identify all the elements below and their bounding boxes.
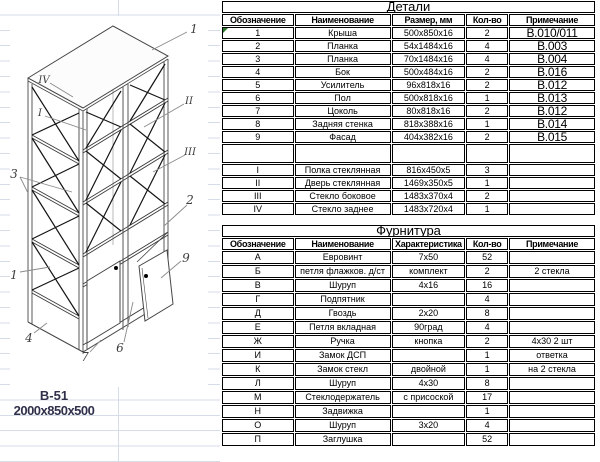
column-header-cell[interactable]: Размер, мм [392, 14, 466, 26]
table-row: ВШуруп4x1616 [222, 279, 595, 292]
table-cell[interactable] [509, 279, 595, 292]
table-cell[interactable]: 7x50 [392, 251, 466, 264]
table-cell[interactable]: 9 [222, 131, 294, 143]
table-row: МСтеклодержательс присоской17 [222, 391, 595, 404]
table-cell[interactable]: Шуруп [295, 377, 391, 390]
table-cell[interactable]: В.015 [509, 131, 595, 143]
table-cell[interactable]: Петля вкладная [295, 321, 391, 334]
center-post [123, 84, 128, 330]
table-cell[interactable]: 1 [466, 363, 508, 376]
table-cell[interactable]: ответка [509, 349, 595, 362]
column-header-cell[interactable]: Кол-во [466, 238, 508, 250]
table-title-row: Детали [222, 1, 595, 13]
table-cell[interactable]: В [222, 279, 294, 292]
table-row: 6Пол500x818x161В.013 [222, 92, 595, 104]
table-cell[interactable]: 8 [466, 377, 508, 390]
sheet-gridlines: 1 IV I 3 1 4 7 6 9 II III 2 В-51 2000x85… [0, 0, 220, 462]
table-cell[interactable]: 3x20 [392, 419, 466, 432]
table-cell[interactable]: 500x484x16 [392, 66, 466, 78]
table-cell[interactable]: Ручка [295, 335, 391, 348]
table-cell[interactable]: I [222, 164, 294, 176]
table-cell[interactable]: III [222, 190, 294, 202]
left-door-handle [114, 266, 118, 270]
table-cell[interactable]: Евровинт [295, 251, 391, 264]
table-row: 5Усилитель96x818x162В.012 [222, 79, 595, 91]
table-row: ЛШуруп4x308 [222, 377, 595, 390]
table-cell[interactable] [509, 377, 595, 390]
table-row: АЕвровинт7x5052 [222, 251, 595, 264]
table-title-row: Фурнитура [222, 225, 595, 237]
column-header-cell[interactable]: Наименование [295, 238, 391, 250]
table-cell[interactable]: 2 [466, 131, 508, 143]
table-cell[interactable]: 3 [466, 164, 508, 176]
table-cell[interactable]: Пол [295, 92, 391, 104]
table-cell[interactable] [392, 293, 466, 306]
table-cell[interactable]: 5 [222, 79, 294, 91]
table-cell[interactable]: А [222, 251, 294, 264]
table-cell[interactable] [509, 433, 595, 446]
table-row: ОШуруп3x204 [222, 419, 595, 432]
table-cell[interactable]: 4 [466, 321, 508, 334]
table-cell[interactable]: В.004 [509, 53, 595, 65]
table-cell[interactable]: Заглушка [295, 433, 391, 446]
table-cell[interactable] [509, 177, 595, 189]
table-cell[interactable] [295, 144, 391, 163]
table-cell[interactable]: М [222, 391, 294, 404]
table-cell[interactable]: 1483x370x4 [392, 190, 466, 202]
table-cell[interactable]: В.016 [509, 66, 595, 78]
table-cell[interactable]: 2 стекла [509, 265, 595, 278]
table-cell[interactable]: Стекло боковое [295, 190, 391, 202]
cabinet-drawing-svg: 1 IV I 3 1 4 7 6 9 II III 2 [10, 16, 208, 387]
table-cell[interactable]: Фасад [295, 131, 391, 143]
label-glass-ii: II [184, 96, 194, 107]
table-cell[interactable]: Стекло заднее [295, 203, 391, 215]
table-cell[interactable]: кнопка [392, 335, 466, 348]
table-cell[interactable]: Шуруп [295, 279, 391, 292]
table-cell[interactable] [392, 405, 466, 418]
table-row: ЖРучкакнопка24x30 2 шт [222, 335, 595, 348]
table-cell[interactable] [509, 293, 595, 306]
table-row: IVСтекло заднее1483x720x41 [222, 203, 595, 215]
model-number: В-51 [0, 388, 108, 403]
table-cell[interactable] [509, 307, 595, 320]
label-part-1-left: 1 [10, 268, 18, 282]
column-header-cell[interactable]: Кол-во [466, 14, 508, 26]
table-cell[interactable]: 52 [466, 251, 508, 264]
table-cell[interactable]: Ж [222, 335, 294, 348]
table-row: IПолка стеклянная816x450x53 [222, 164, 595, 176]
table-row: IIДверь стеклянная1469x350x51 [222, 177, 595, 189]
column-header-cell[interactable]: Примечание [509, 238, 595, 250]
table-cell[interactable]: П [222, 433, 294, 446]
table-row: НЗадвижка1 [222, 405, 595, 418]
table-cell[interactable]: на 2 стекла [509, 363, 595, 376]
column-header-cell[interactable]: Примечание [509, 14, 595, 26]
details-table-body: 1Крыша500x850x162В.010/0112Планка54x1484… [222, 27, 595, 215]
table-row: ОбозначениеНаименованиеРазмер, ммКол-воП… [222, 14, 595, 26]
table-cell[interactable]: 2 [466, 190, 508, 202]
table-cell[interactable]: 52 [466, 433, 508, 446]
table-cell[interactable]: Планка [295, 53, 391, 65]
column-header-cell[interactable]: Наименование [295, 14, 391, 26]
table-row: ИЗамок ДСП1ответка [222, 349, 595, 362]
table-cell[interactable]: 1483x720x4 [392, 203, 466, 215]
table-row: 7Цоколь80x818x162В.012 [222, 105, 595, 117]
hardware-table: Фурнитура ОбозначениеНаименованиеХаракте… [221, 224, 596, 447]
table-cell[interactable]: Г [222, 293, 294, 306]
table-cell[interactable]: В.010/011 [509, 27, 595, 39]
table-cell[interactable]: О [222, 419, 294, 432]
table-cell[interactable] [392, 433, 466, 446]
table-cell[interactable]: 4x30 2 шт [509, 335, 595, 348]
table-cell[interactable]: Замок стекл [295, 363, 391, 376]
table-cell[interactable] [509, 251, 595, 264]
label-part-9: 9 [182, 251, 190, 265]
table-cell[interactable]: В.013 [509, 92, 595, 104]
left-face-glass-diagonals [32, 87, 79, 316]
column-header-cell[interactable]: Обозначение [222, 238, 294, 250]
label-part-3: 3 [10, 167, 18, 181]
table-cell[interactable]: 1 [466, 118, 508, 130]
table-cell[interactable]: Дверь стеклянная [295, 177, 391, 189]
table-cell[interactable]: Л [222, 377, 294, 390]
table-cell[interactable]: Цоколь [295, 105, 391, 117]
label-glass-i: I [37, 108, 43, 119]
table-cell[interactable]: 4x30 [392, 377, 466, 390]
table-cell[interactable] [509, 391, 595, 404]
table-cell[interactable]: 404x382x16 [392, 131, 466, 143]
table-cell[interactable]: 816x450x5 [392, 164, 466, 176]
table-cell[interactable]: 4 [466, 419, 508, 432]
table-row: 9Фасад404x382x162В.015 [222, 131, 595, 143]
table-row: 4Бок500x484x162В.016 [222, 66, 595, 78]
details-table-title[interactable]: Детали [222, 1, 595, 13]
table-cell[interactable]: 2 [466, 265, 508, 278]
table-cell[interactable]: Задняя стенка [295, 118, 391, 130]
table-cell[interactable]: И [222, 349, 294, 362]
table-row: 1Крыша500x850x162В.010/011 [222, 27, 595, 39]
table-cell[interactable]: 90град [392, 321, 466, 334]
table-cell[interactable]: В.012 [509, 105, 595, 117]
table-cell[interactable] [392, 349, 466, 362]
table-cell[interactable]: 1 [466, 405, 508, 418]
model-dimensions: 2000x850x500 [0, 403, 108, 418]
table-cell[interactable]: Е [222, 321, 294, 334]
table-row: ГПодпятник4 [222, 293, 595, 306]
table-cell[interactable]: Задвижка [295, 405, 391, 418]
table-cell[interactable]: К [222, 363, 294, 376]
table-cell[interactable]: Б [222, 265, 294, 278]
table-cell[interactable]: 2 [222, 40, 294, 52]
table-cell[interactable]: 1 [466, 177, 508, 189]
table-row: ПЗаглушка52 [222, 433, 595, 446]
table-cell[interactable] [222, 144, 294, 163]
label-part-6: 6 [116, 341, 124, 355]
table-cell[interactable]: 17 [466, 391, 508, 404]
label-glass-iii: III [183, 147, 197, 158]
table-cell[interactable]: 2 [466, 335, 508, 348]
table-row [222, 144, 595, 163]
table-row: КЗамок стеклдвойной1на 2 стекла [222, 363, 595, 376]
table-cell[interactable] [392, 144, 466, 163]
table-cell[interactable]: 54x1484x16 [392, 40, 466, 52]
table-cell[interactable] [509, 419, 595, 432]
hardware-table-title[interactable]: Фурнитура [222, 225, 595, 237]
table-cell[interactable]: 8 [222, 118, 294, 130]
table-cell[interactable]: Крыша [295, 27, 391, 39]
table-cell[interactable] [509, 203, 595, 215]
details-table-header: ОбозначениеНаименованиеРазмер, ммКол-воП… [222, 14, 595, 26]
column-header-cell[interactable]: Обозначение [222, 14, 294, 26]
table-cell[interactable]: 80x818x16 [392, 105, 466, 117]
table-cell[interactable]: комплект [392, 265, 466, 278]
label-part-7: 7 [81, 350, 89, 364]
table-cell[interactable]: 1469x350x5 [392, 177, 466, 189]
table-cell[interactable]: двойной [392, 363, 466, 376]
table-cell[interactable]: В.014 [509, 118, 595, 130]
table-cell[interactable]: 2 [466, 105, 508, 117]
label-part-4: 4 [24, 331, 33, 345]
table-cell[interactable]: 2x20 [392, 307, 466, 320]
column-header-cell[interactable]: Характеристика [392, 238, 466, 250]
table-cell[interactable]: 70x1484x16 [392, 53, 466, 65]
table-cell[interactable]: Бок [295, 66, 391, 78]
left-door [87, 261, 120, 343]
hardware-table-header: ОбозначениеНаименованиеХарактеристикаКол… [222, 238, 595, 250]
table-cell[interactable]: 8 [466, 307, 508, 320]
table-cell[interactable]: Шуруп [295, 419, 391, 432]
table-cell[interactable]: 96x818x16 [392, 79, 466, 91]
table-cell[interactable]: 1 [466, 349, 508, 362]
table-row: 2Планка54x1484x164В.003 [222, 40, 595, 52]
cabinet-drawing[interactable]: 1 IV I 3 1 4 7 6 9 II III 2 [10, 16, 208, 387]
table-cell[interactable]: 7 [222, 105, 294, 117]
table-cell[interactable] [466, 144, 508, 163]
label-glass-iv: IV [37, 75, 51, 86]
table-cell[interactable]: В.012 [509, 79, 595, 91]
table-cell[interactable]: 1 [466, 203, 508, 215]
table-cell[interactable]: 4 [466, 293, 508, 306]
spreadsheet-page: { "drawing": { "model": "В-51", "dimensi… [0, 0, 600, 462]
table-cell[interactable]: II [222, 177, 294, 189]
table-cell[interactable]: 500x850x16 [392, 27, 466, 39]
table-cell[interactable] [509, 144, 595, 163]
label-part-2: 2 [185, 193, 194, 207]
parts-tables-panel: Детали ОбозначениеНаименованиеРазмер, мм… [221, 0, 600, 447]
table-cell[interactable]: 4 [466, 40, 508, 52]
table-cell[interactable]: Замок ДСП [295, 349, 391, 362]
table-cell[interactable]: Стеклодержатель [295, 391, 391, 404]
table-cell[interactable]: IV [222, 203, 294, 215]
table-cell[interactable]: 4 [222, 66, 294, 78]
table-cell[interactable]: Подпятник [295, 293, 391, 306]
table-cell[interactable] [509, 190, 595, 202]
table-cell[interactable]: 16 [466, 279, 508, 292]
table-cell[interactable]: Н [222, 405, 294, 418]
table-row: ОбозначениеНаименованиеХарактеристикаКол… [222, 238, 595, 250]
table-cell[interactable] [509, 321, 595, 334]
table-cell[interactable]: 2 [466, 79, 508, 91]
table-cell[interactable]: В.003 [509, 40, 595, 52]
table-cell[interactable]: Планка [295, 40, 391, 52]
table-cell[interactable]: петля флажков. д/ст [295, 265, 391, 278]
table-cell[interactable]: с присоской [392, 391, 466, 404]
table-cell[interactable]: 4x16 [392, 279, 466, 292]
table-row: ДГвоздь2x208 [222, 307, 595, 320]
cabinet-top-face [28, 26, 168, 108]
table-cell[interactable]: 818x388x16 [392, 118, 466, 130]
hardware-table-body: АЕвровинт7x5052Бпетля флажков. д/сткомпл… [222, 251, 595, 446]
table-cell[interactable]: 3 [222, 53, 294, 65]
table-row: IIIСтекло боковое1483x370x42 [222, 190, 595, 202]
table-cell[interactable]: Усилитель [295, 79, 391, 91]
details-table: Детали ОбозначениеНаименованиеРазмер, мм… [221, 0, 596, 216]
table-row: 8Задняя стенка818x388x161В.014 [222, 118, 595, 130]
table-cell[interactable] [509, 405, 595, 418]
table-cell[interactable]: Гвоздь [295, 307, 391, 320]
open-door-handle [144, 274, 148, 278]
label-part-1-top: 1 [190, 22, 198, 36]
table-row: 3Планка70x1484x164В.004 [222, 53, 595, 65]
table-cell[interactable]: 4 [466, 53, 508, 65]
table-row: ЕПетля вкладная90град4 [222, 321, 595, 334]
table-cell[interactable]: 1 [466, 92, 508, 104]
table-cell[interactable] [509, 164, 595, 176]
table-cell[interactable]: Д [222, 307, 294, 320]
table-cell[interactable]: Полка стеклянная [295, 164, 391, 176]
table-cell[interactable]: 2 [466, 66, 508, 78]
table-cell[interactable]: 1 [222, 27, 294, 39]
model-caption: В-51 2000x850x500 [0, 388, 108, 418]
table-cell[interactable]: 2 [466, 27, 508, 39]
table-row: Бпетля флажков. д/сткомплект22 стекла [222, 265, 595, 278]
table-cell[interactable]: 500x818x16 [392, 92, 466, 104]
table-cell[interactable]: 6 [222, 92, 294, 104]
